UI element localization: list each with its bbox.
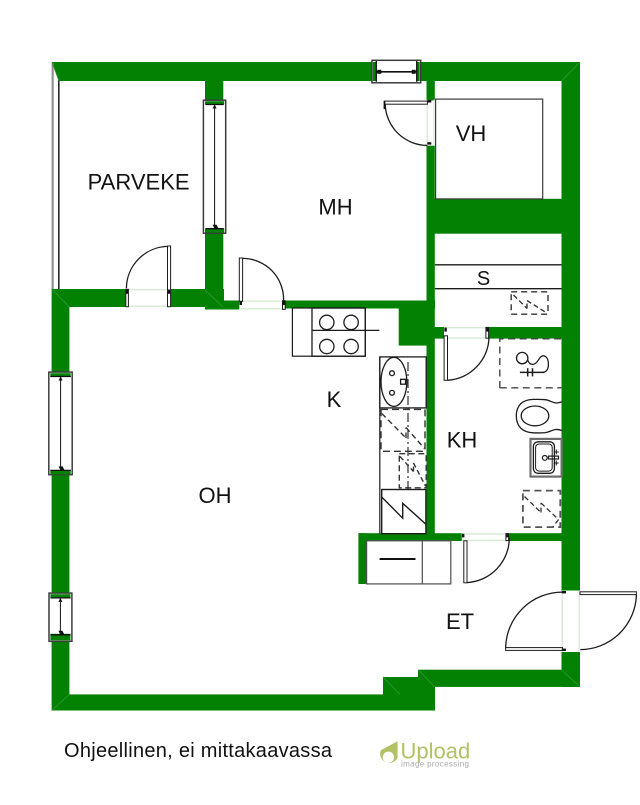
svg-text:ET: ET bbox=[446, 609, 474, 634]
svg-text:Ohjeellinen, ei mittakaavassa: Ohjeellinen, ei mittakaavassa bbox=[64, 740, 333, 762]
svg-text:OH: OH bbox=[199, 483, 232, 508]
svg-text:S: S bbox=[477, 268, 490, 290]
svg-text:VH: VH bbox=[456, 121, 487, 146]
svg-text:MH: MH bbox=[318, 195, 352, 220]
svg-text:K: K bbox=[327, 387, 342, 412]
svg-text:PARVEKE: PARVEKE bbox=[88, 170, 190, 195]
svg-text:KH: KH bbox=[447, 428, 478, 453]
svg-text:image processing: image processing bbox=[401, 759, 469, 768]
